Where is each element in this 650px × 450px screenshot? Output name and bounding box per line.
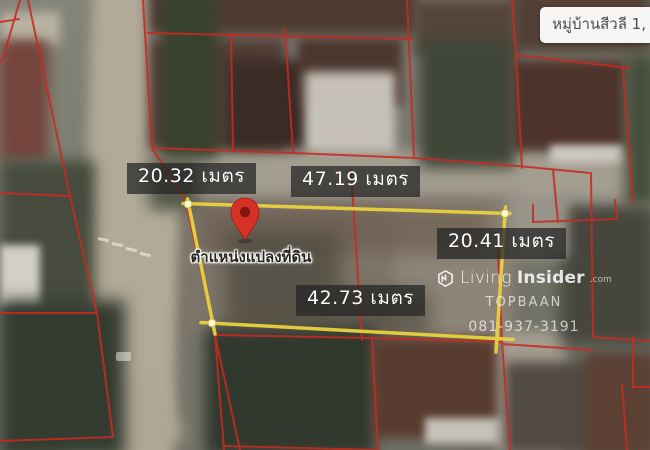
- map-overlay: [0, 0, 650, 450]
- plot-boundary: [183, 199, 513, 352]
- measurement-label-north: 47.19 เมตร: [291, 166, 420, 197]
- measurement-label-east: 20.41 เมตร: [437, 228, 566, 259]
- measurement-label-west: 20.32 เมตร: [127, 163, 256, 194]
- village-name-label: หมู่บ้านสีวลี 1,: [540, 7, 650, 43]
- measurement-label-south: 42.73 เมตร: [296, 285, 425, 316]
- cadastral-parcel-lines: [0, 0, 650, 450]
- pin-caption: ตำแหน่งแปลงที่ดิน: [176, 245, 326, 269]
- satellite-map-view: 20.32 เมตร 47.19 เมตร 20.41 เมตร 42.73 เ…: [0, 0, 650, 450]
- road-markings: [98, 237, 151, 361]
- map-pin-icon[interactable]: [231, 198, 259, 244]
